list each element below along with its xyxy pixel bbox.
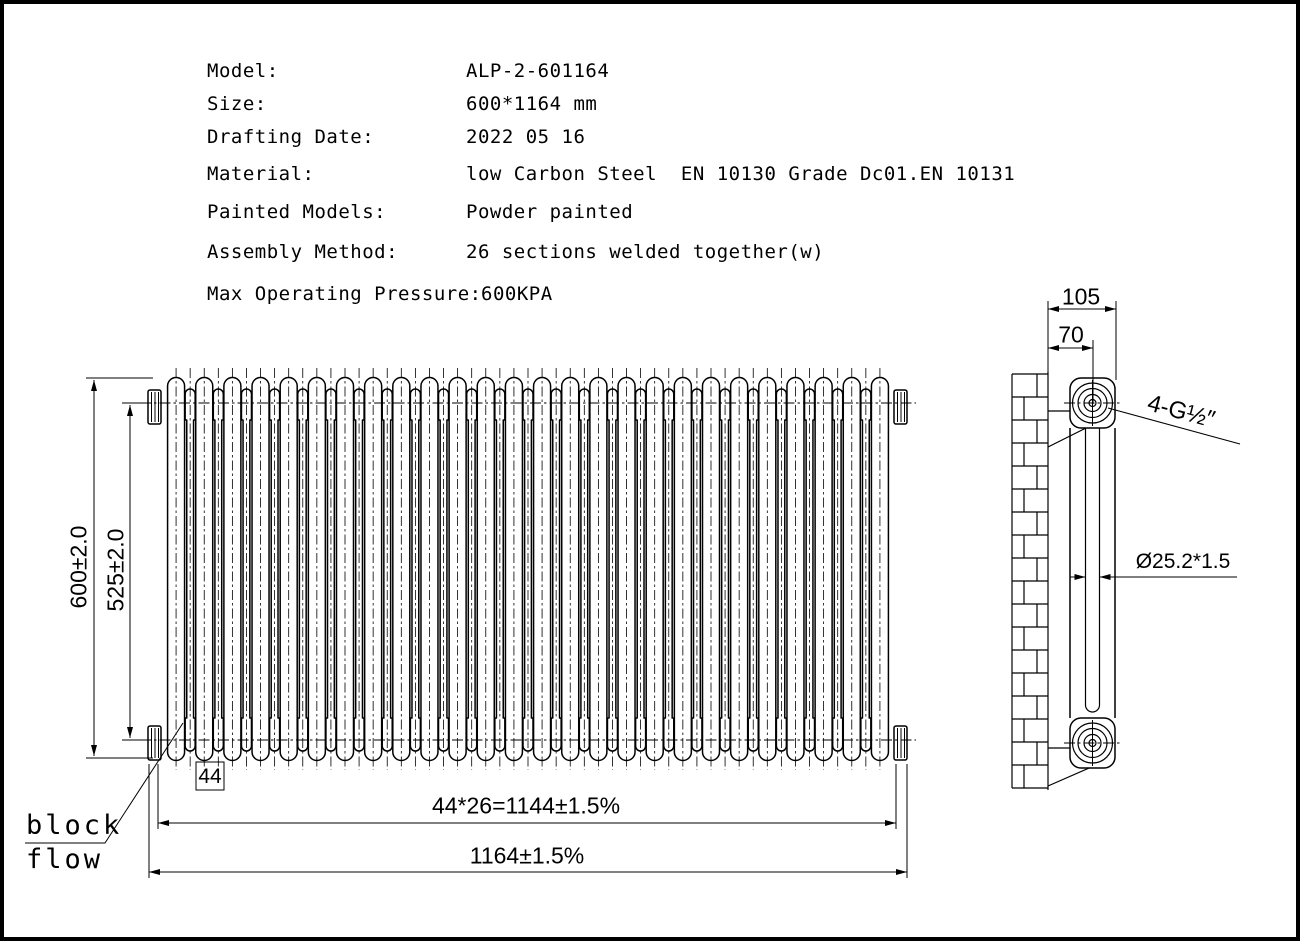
spec-value-material: low Carbon Steel EN 10130 Grade Dc01.EN …	[466, 163, 1015, 185]
tube-bottom	[1086, 705, 1100, 712]
drawing-sheet: Model: ALP-2-601164 Size: 600*1164 mm Dr…	[0, 0, 1300, 941]
spec-value-assembly: 26 sections welded together(w)	[466, 241, 824, 263]
spec-label-size: Size:	[207, 93, 267, 115]
label-block: block	[26, 810, 122, 841]
radiator-side-profile	[1064, 378, 1121, 768]
dim-section-pitch: 44	[198, 765, 221, 789]
dim-sections-total: 44*26=1144±1.5%	[432, 793, 620, 820]
label-flow: flow	[26, 844, 103, 875]
dim-wall-to-center: 70	[1058, 322, 1084, 349]
spec-label-model: Model:	[207, 60, 279, 82]
dim-length-overall: 1164±1.5%	[470, 843, 585, 870]
spec-label-pressure: Max Operating Pressure:	[207, 283, 482, 305]
spec-value-pressure: 600KPA	[481, 283, 553, 305]
spec-value-date: 2022 05 16	[466, 126, 585, 148]
cad-linework	[0, 0, 1300, 941]
spec-label-material: Material:	[207, 163, 314, 185]
spec-value-model: ALP-2-601164	[466, 60, 609, 82]
spec-value-painted: Powder painted	[466, 201, 633, 223]
spec-value-size: 600*1164 mm	[466, 93, 597, 115]
side-view	[1012, 301, 1240, 790]
spec-label-date: Drafting Date:	[207, 126, 374, 148]
dim-height-overall: 600±2.0	[66, 526, 93, 609]
spec-label-assembly: Assembly Method:	[207, 241, 398, 263]
spec-label-painted: Painted Models:	[207, 201, 386, 223]
dim-depth-overall: 105	[1062, 284, 1100, 311]
wall-brick-hatch	[1012, 374, 1048, 788]
dim-tube: Ø25.2*1.5	[1136, 550, 1231, 574]
dim-height-centers: 525±2.0	[103, 529, 130, 612]
